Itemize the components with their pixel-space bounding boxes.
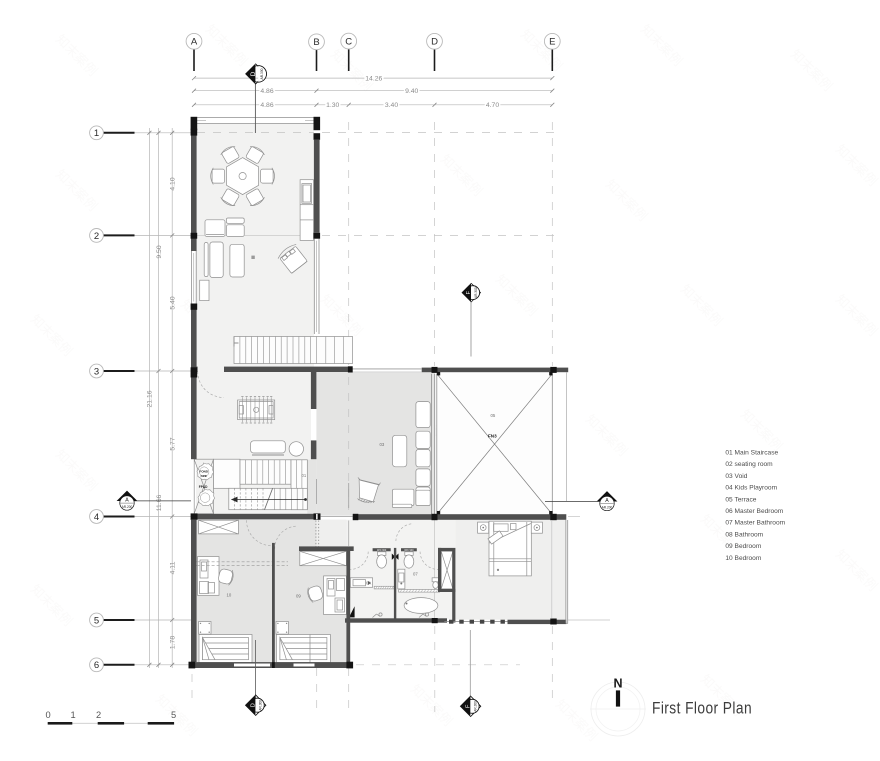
svg-text:FOND: FOND [200, 470, 209, 474]
svg-text:9.50: 9.50 [156, 245, 163, 258]
svg-text:4.10: 4.10 [170, 177, 177, 190]
svg-text:14.26: 14.26 [365, 75, 382, 82]
svg-text:4.70: 4.70 [486, 102, 499, 109]
svg-text:A: A [125, 498, 129, 504]
svg-text:04 Kids Playroom: 04 Kids Playroom [725, 485, 777, 492]
svg-text:1: 1 [71, 710, 76, 720]
svg-text:FP&D: FP&D [199, 485, 208, 489]
svg-text:05 Terrace: 05 Terrace [725, 496, 756, 503]
svg-text:5: 5 [94, 615, 99, 626]
svg-text:6A: 6A [366, 581, 371, 586]
svg-text:2: 2 [96, 710, 101, 720]
svg-text:OPE: OPE [201, 474, 207, 478]
svg-text:07: 07 [413, 572, 418, 577]
svg-text:A: A [191, 37, 198, 48]
svg-text:01: 01 [302, 473, 307, 478]
svg-text:01 Main Staircase: 01 Main Staircase [725, 450, 778, 457]
svg-text:4.86: 4.86 [260, 102, 273, 109]
svg-text:1.78: 1.78 [170, 636, 177, 649]
svg-text:2: 2 [94, 231, 99, 242]
svg-text:1.30: 1.30 [326, 102, 339, 109]
svg-text:10: 10 [227, 593, 232, 598]
svg-text:AR.300: AR.300 [260, 68, 264, 79]
svg-text:D: D [250, 71, 257, 76]
svg-text:AR.200: AR.200 [122, 505, 133, 509]
svg-text:4.86: 4.86 [260, 88, 273, 95]
svg-text:F: F [466, 290, 472, 294]
svg-text:4: 4 [94, 512, 99, 523]
svg-text:W/C 900: W/C 900 [377, 549, 387, 552]
svg-text:09: 09 [296, 594, 301, 599]
svg-text:07 Master Bathroom: 07 Master Bathroom [725, 520, 785, 527]
svg-text:First Floor Plan: First Floor Plan [652, 699, 752, 717]
svg-text:E: E [549, 37, 555, 48]
svg-text:A: A [605, 498, 609, 504]
svg-text:6: 6 [94, 660, 99, 671]
svg-text:C: C [345, 36, 352, 47]
svg-text:N: N [613, 677, 622, 691]
svg-text:D: D [250, 703, 256, 707]
svg-text:1: 1 [94, 128, 99, 139]
svg-text:03 Void: 03 Void [725, 473, 747, 480]
svg-text:FN3: FN3 [488, 434, 497, 439]
svg-text:11.66: 11.66 [156, 495, 163, 512]
svg-text:0: 0 [46, 710, 51, 720]
svg-text:05: 05 [491, 413, 496, 418]
svg-text:02 seating room: 02 seating room [725, 461, 773, 468]
svg-text:5.77: 5.77 [170, 437, 177, 450]
svg-text:B: B [313, 37, 319, 48]
svg-text:5.40: 5.40 [170, 296, 177, 309]
svg-text:W/C 900: W/C 900 [404, 549, 414, 552]
svg-text:D: D [431, 37, 438, 48]
svg-text:AR.300: AR.300 [474, 287, 478, 298]
svg-text:21.16: 21.16 [147, 390, 154, 407]
svg-text:5: 5 [171, 710, 176, 720]
svg-text:4.11: 4.11 [170, 561, 177, 574]
svg-text:AR.300: AR.300 [258, 700, 262, 711]
svg-text:F: F [465, 704, 471, 708]
svg-text:03: 03 [380, 442, 385, 447]
svg-text:3: 3 [94, 366, 99, 377]
svg-text:10 Bedroom: 10 Bedroom [725, 555, 761, 562]
svg-text:06 Master Bedroom: 06 Master Bedroom [725, 508, 783, 515]
svg-text:AR.300: AR.300 [473, 701, 477, 712]
svg-text:08 Bathroom: 08 Bathroom [725, 531, 763, 538]
svg-text:09 Bedroom: 09 Bedroom [725, 543, 761, 550]
svg-text:9.40: 9.40 [405, 88, 418, 95]
svg-text:3.40: 3.40 [385, 102, 398, 109]
svg-text:AR.200: AR.200 [602, 506, 613, 510]
